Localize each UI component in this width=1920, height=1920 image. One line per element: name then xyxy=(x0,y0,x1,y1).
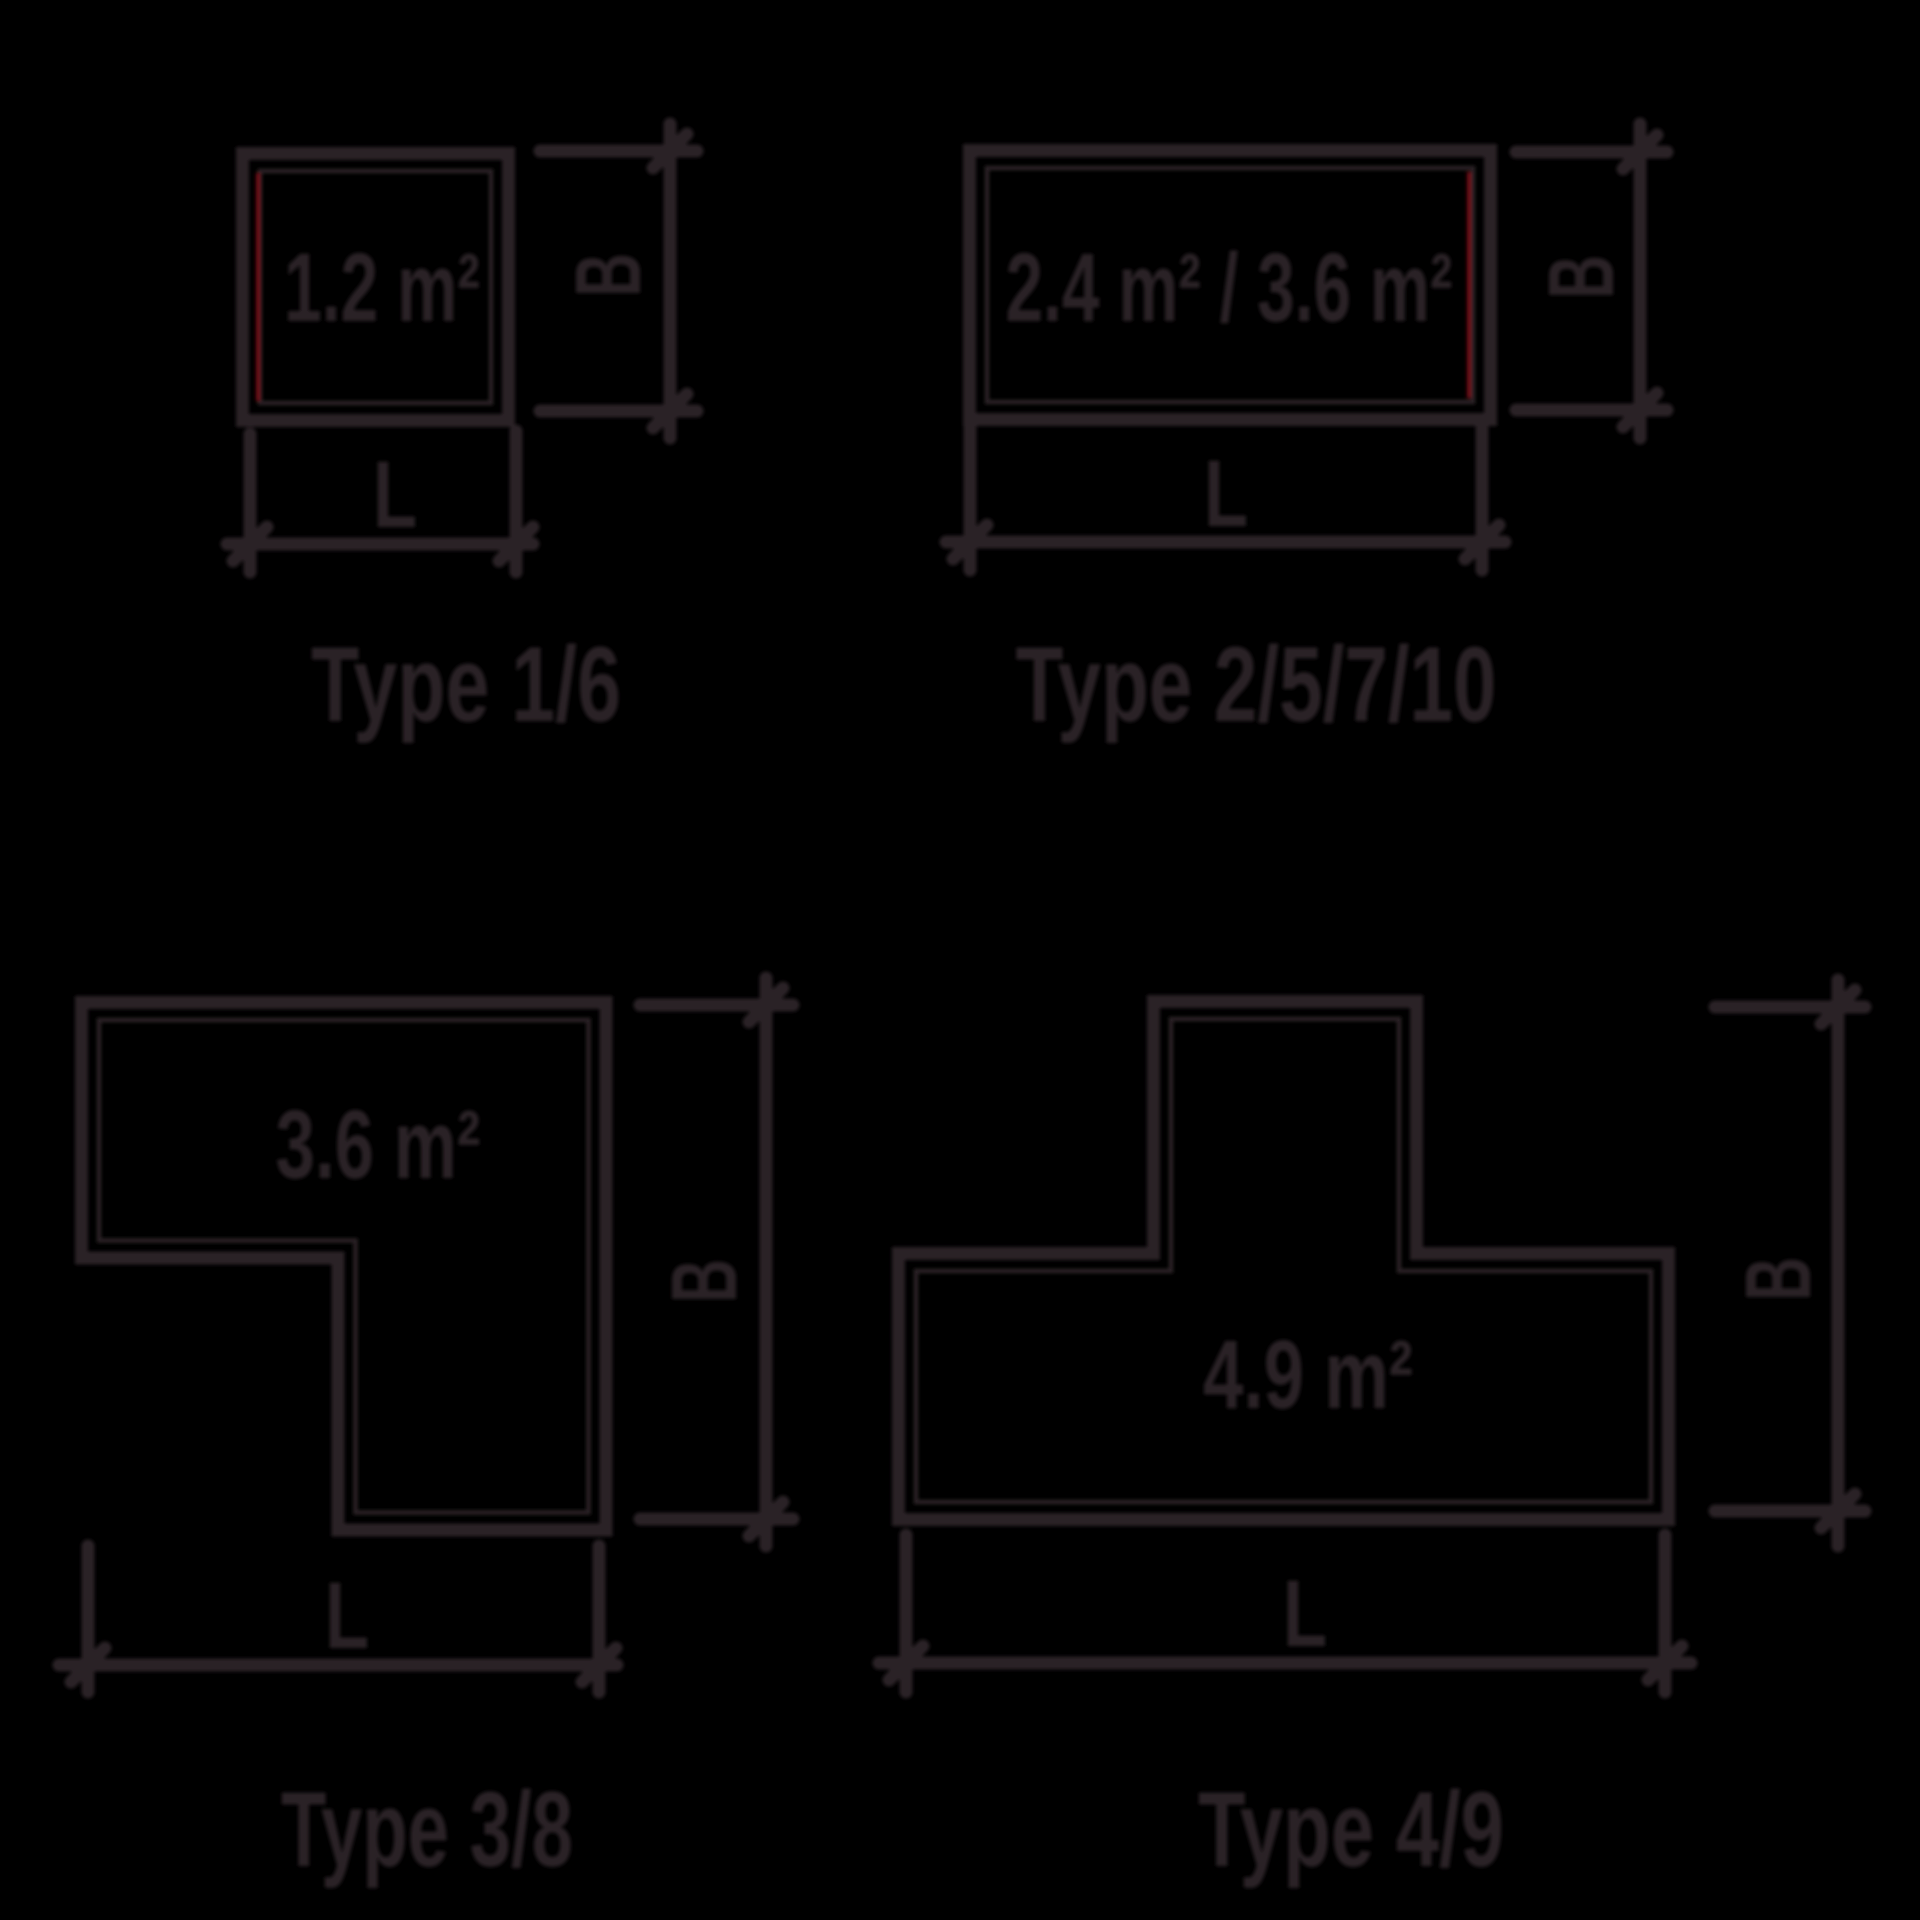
svg-text:B: B xyxy=(1726,1257,1830,1301)
svg-text:B: B xyxy=(556,253,660,297)
svg-text:2.4 m² / 3.6 m²: 2.4 m² / 3.6 m² xyxy=(1006,233,1453,342)
svg-text:L: L xyxy=(373,442,417,548)
svg-text:B: B xyxy=(652,1259,756,1303)
svg-text:L: L xyxy=(1204,441,1248,547)
svg-text:Type 4/9: Type 4/9 xyxy=(1198,1769,1504,1889)
svg-text:L: L xyxy=(1283,1561,1327,1667)
svg-text:L: L xyxy=(325,1563,369,1669)
svg-text:Type 3/8: Type 3/8 xyxy=(281,1769,573,1889)
svg-text:3.6 m²: 3.6 m² xyxy=(276,1090,481,1199)
svg-text:Type 2/5/7/10: Type 2/5/7/10 xyxy=(1016,624,1497,744)
svg-text:1.2 m²: 1.2 m² xyxy=(284,233,480,342)
svg-text:4.9 m²: 4.9 m² xyxy=(1203,1320,1413,1429)
svg-text:Type 1/6: Type 1/6 xyxy=(311,624,621,744)
svg-text:B: B xyxy=(1529,255,1633,299)
